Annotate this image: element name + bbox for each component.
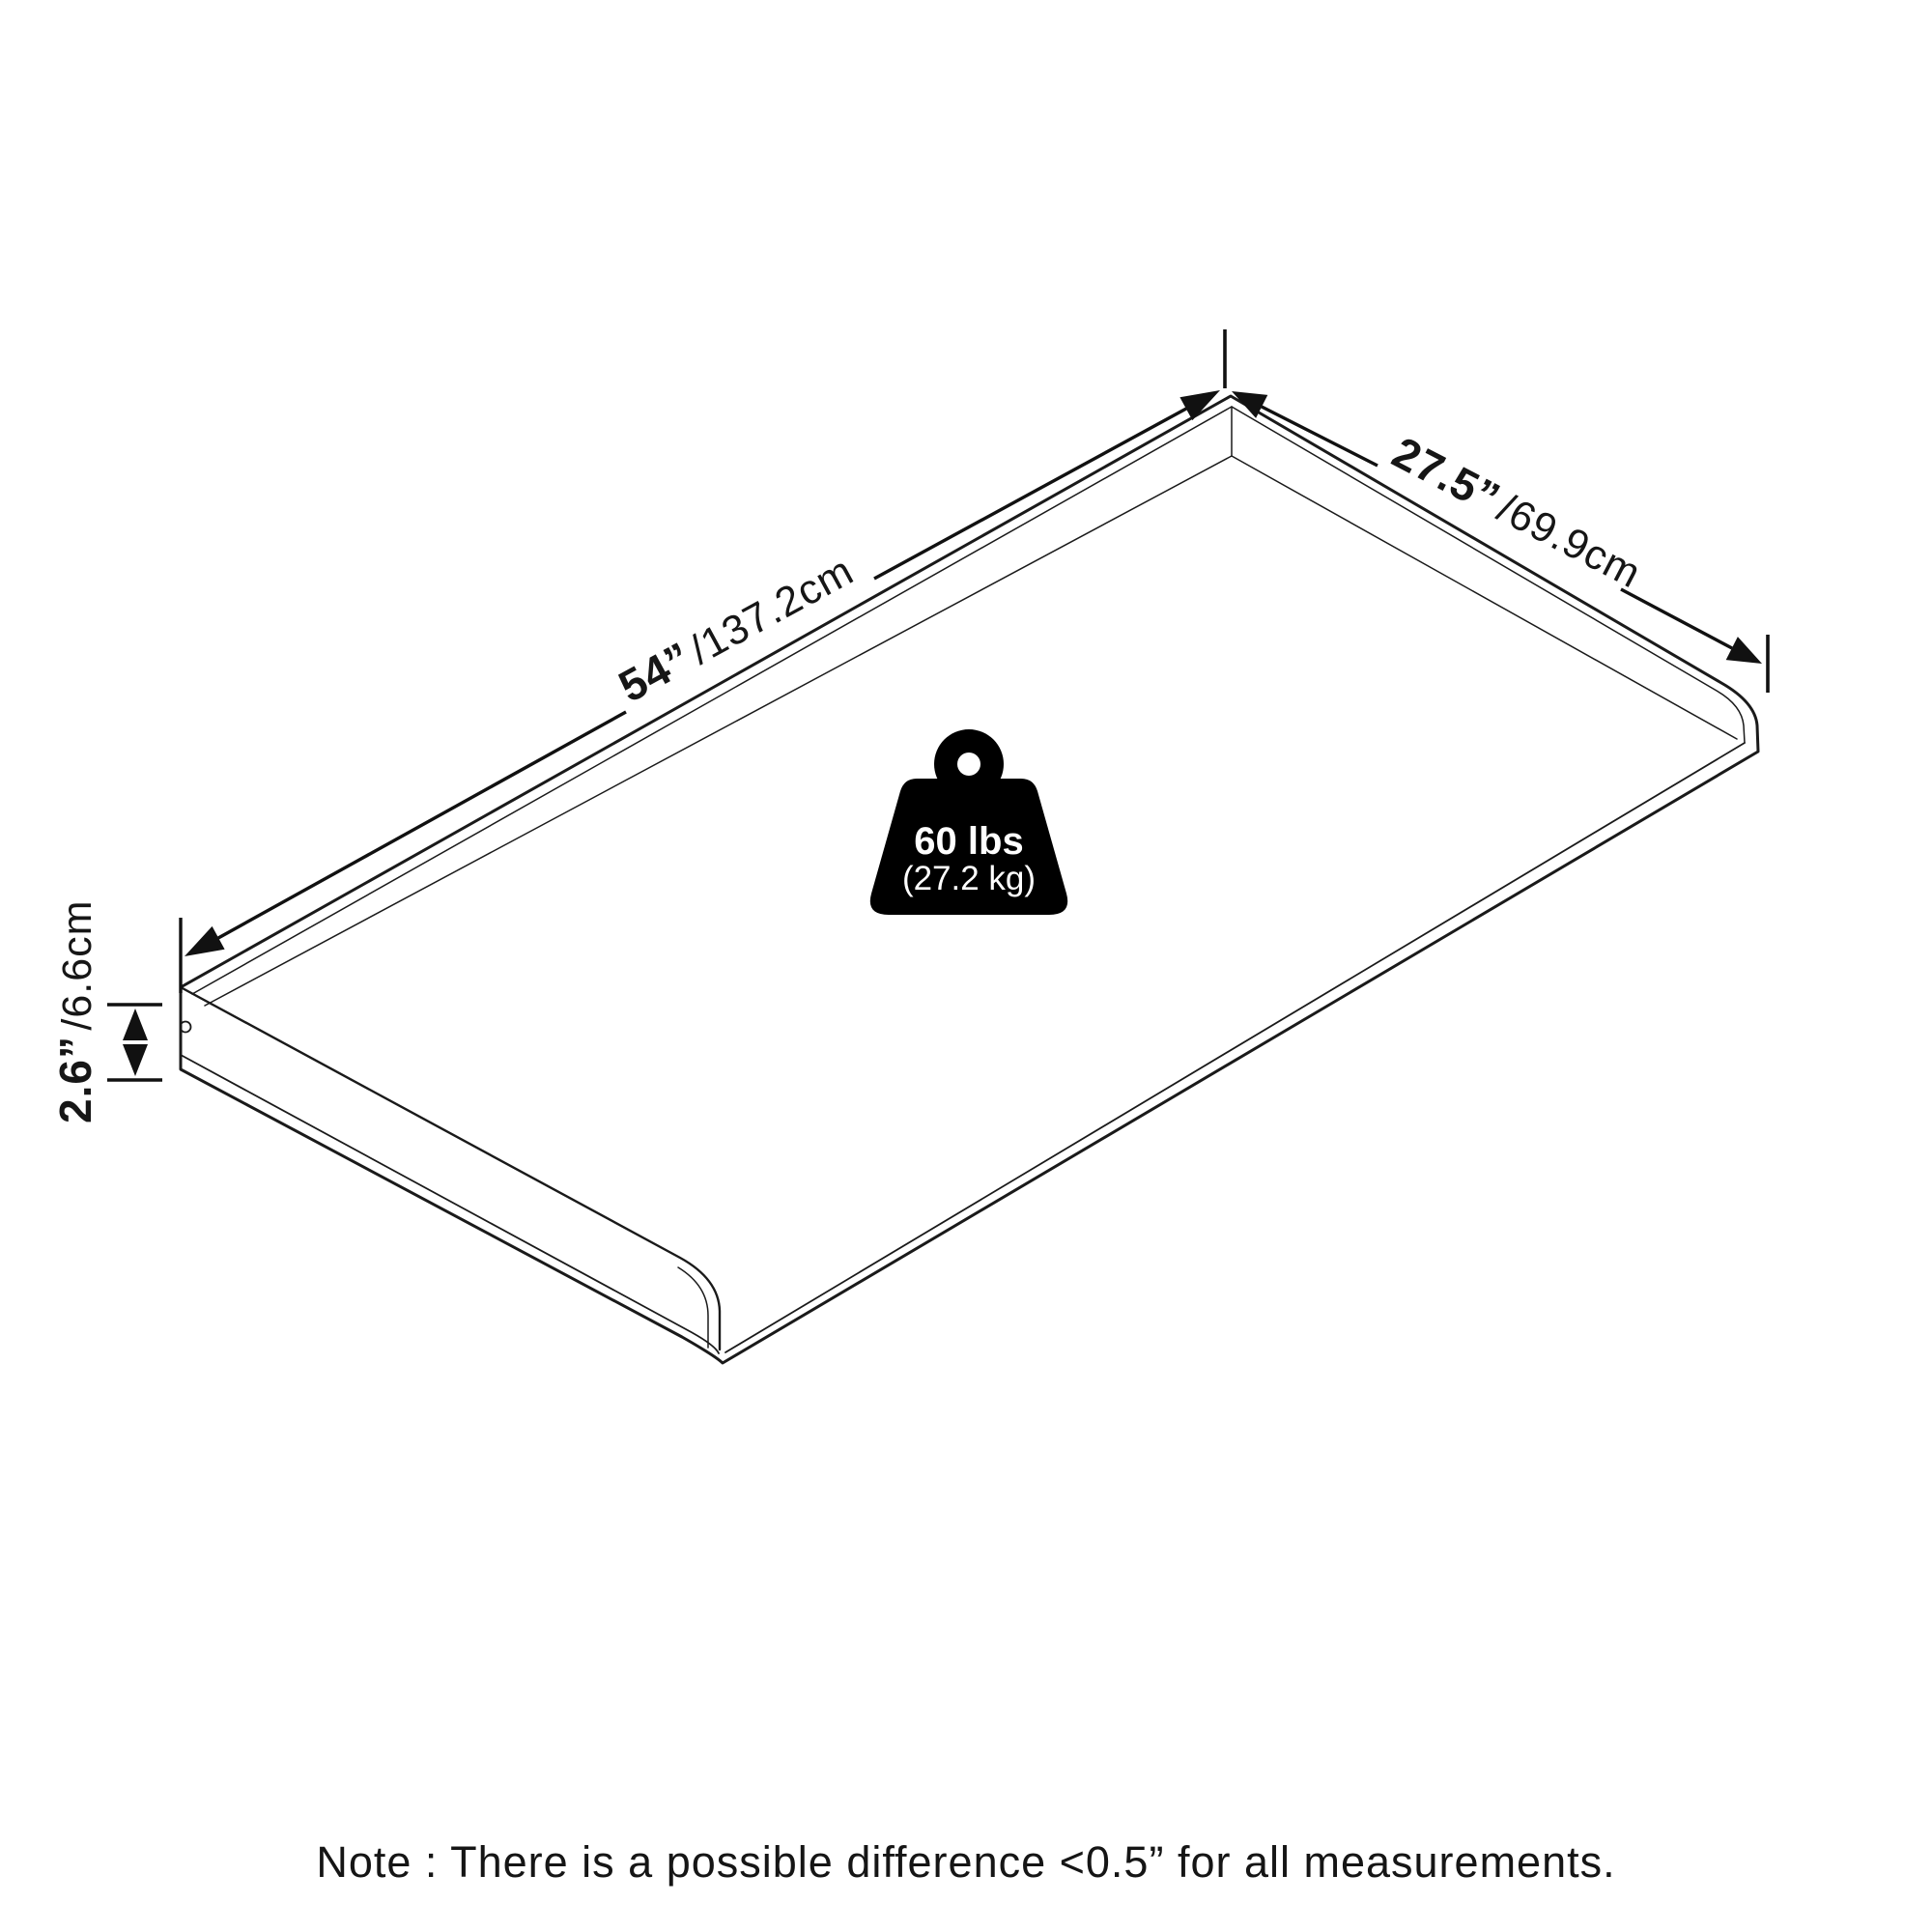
panel-front-corner-inner-curve — [678, 1267, 708, 1348]
weight-kilograms-label: (27.2 kg) — [902, 860, 1036, 897]
panel-lip-inner-left — [192, 407, 1232, 994]
panel-diagram-svg: 54” /137.2cm 27.5” /69.9cm 2.6” /6.6cm — [0, 0, 1932, 1932]
height-dimension: 2.6” /6.6cm — [50, 900, 162, 1123]
depth-dimension: 27.5” /69.9cm — [1232, 391, 1768, 693]
height-label-imperial: 2.6” — [50, 1036, 100, 1123]
depth-label-metric: /69.9cm — [1490, 485, 1648, 597]
depth-label-imperial: 27.5” — [1384, 427, 1508, 524]
length-arrow-left — [185, 926, 225, 956]
height-label-metric: /6.6cm — [54, 900, 100, 1031]
panel-lip-base-left — [205, 456, 1232, 1006]
length-line-segment-1 — [218, 712, 626, 938]
height-arrow-up — [123, 1009, 148, 1040]
panel-front-right-surface-edge — [725, 743, 1745, 1352]
weight-capacity-badge: 60 lbs (27.2 kg) — [870, 729, 1067, 915]
panel-lip-inner-right — [1232, 407, 1745, 743]
height-arrow-down — [123, 1044, 148, 1076]
length-line-segment-2 — [874, 409, 1186, 579]
weight-icon-ring-hole — [957, 753, 980, 776]
depth-line-segment-1 — [1262, 407, 1378, 466]
depth-arrow-right — [1726, 637, 1762, 664]
length-label-imperial: 54” — [611, 632, 700, 712]
panel-front-left-bottom-line — [181, 1055, 719, 1353]
length-dimension: 54” /137.2cm — [181, 329, 1225, 993]
depth-line-segment-2 — [1621, 589, 1732, 648]
dimension-diagram: 54” /137.2cm 27.5” /69.9cm 2.6” /6.6cm — [0, 0, 1932, 1932]
panel-front-left-top-edge — [181, 987, 720, 1350]
height-label: 2.6” /6.6cm — [50, 900, 100, 1123]
weight-pounds-label: 60 lbs — [914, 820, 1023, 863]
depth-label: 27.5” /69.9cm — [1384, 427, 1650, 598]
measurement-note: Note : There is a possible difference <0… — [0, 1837, 1932, 1888]
